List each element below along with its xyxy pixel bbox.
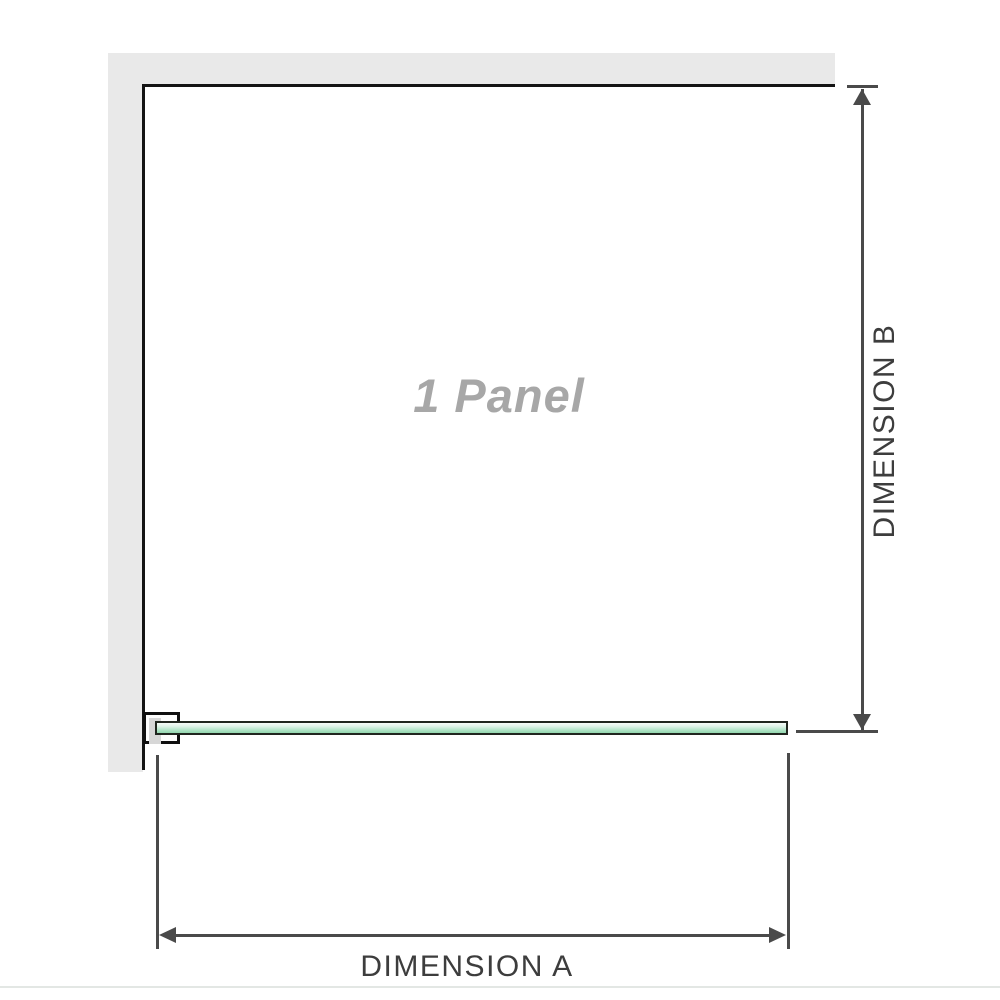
arrowhead-right-icon xyxy=(769,927,786,943)
wall-top xyxy=(108,53,835,84)
arrowhead-down-icon xyxy=(853,714,871,730)
dimension-a-left-extension xyxy=(156,755,159,949)
dimension-b-label: DIMENSION B xyxy=(867,311,903,551)
dimension-a-line xyxy=(165,934,779,937)
arrowhead-left-icon xyxy=(159,927,176,943)
page-baseline-divider xyxy=(0,986,1000,988)
dimension-a-right-extension xyxy=(787,753,790,949)
dimension-b-bottom-tick xyxy=(796,730,878,733)
arrowhead-up-icon xyxy=(853,89,871,105)
dimension-b-line xyxy=(861,89,864,731)
panel-count-label: 1 Panel xyxy=(349,368,649,423)
wall-left xyxy=(108,53,143,772)
dimension-a-label: DIMENSION A xyxy=(317,950,617,984)
glass-panel-bar xyxy=(155,721,788,735)
dimension-b-top-tick xyxy=(847,85,878,88)
shower-panel-dimension-diagram: 1 Panel DIMENSION B DIMENSION A xyxy=(0,0,1000,1000)
panel-outline xyxy=(142,84,835,770)
